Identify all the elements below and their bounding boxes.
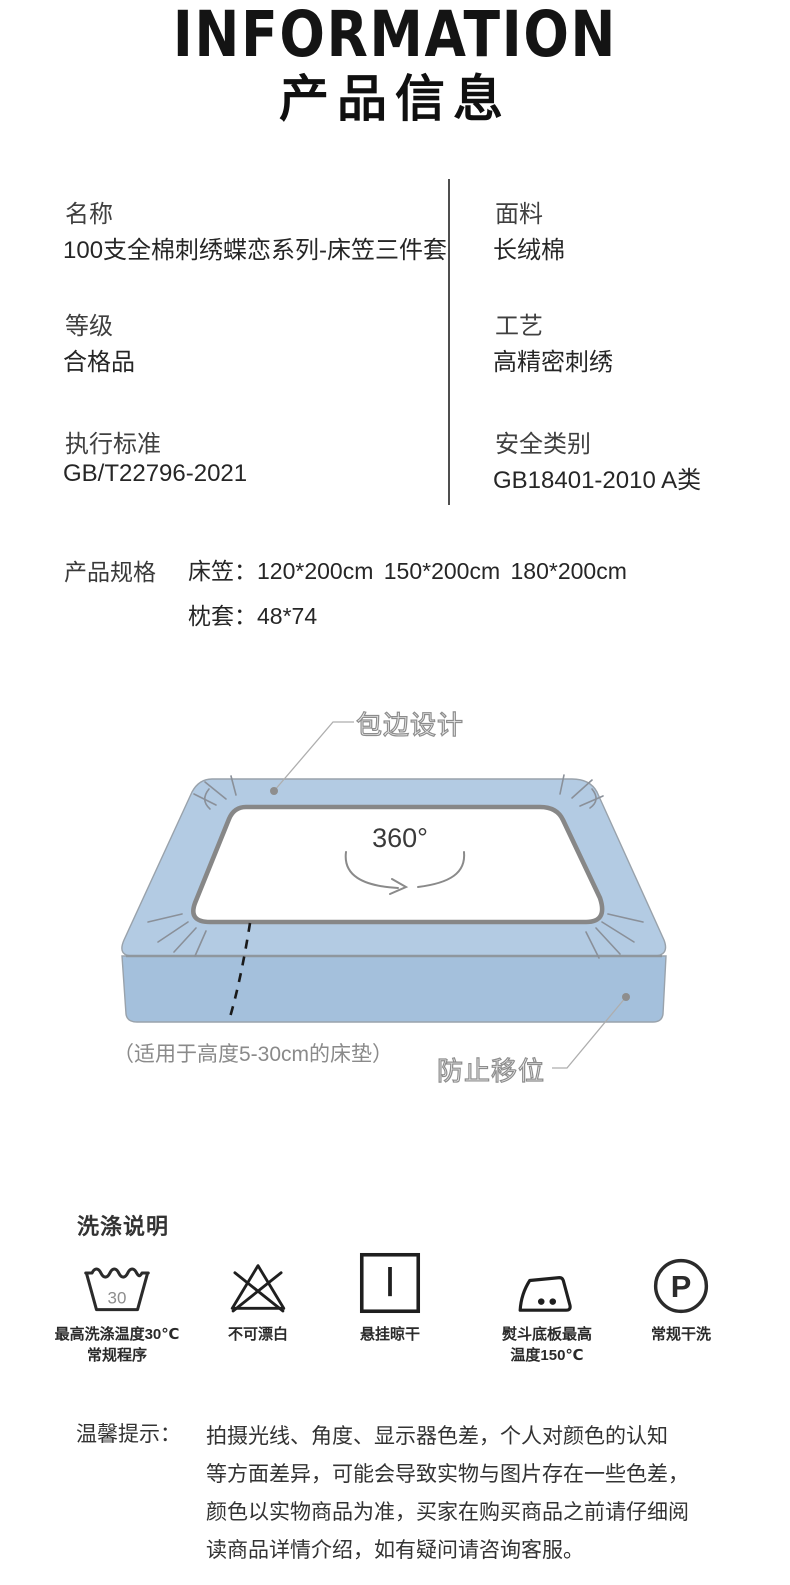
field-craft-value: 高精密刺绣	[493, 342, 613, 377]
spec-sheet-name: 床笠：	[188, 558, 257, 584]
spec-pillow-value: 48*74	[257, 603, 317, 629]
tips-label: 温馨提示：	[76, 1418, 181, 1448]
wash-tub-30-icon: 30	[82, 1265, 152, 1315]
tips-line: 等方面差异，可能会导致实物与图片存在一些色差，	[206, 1456, 689, 1494]
field-fabric-label: 面料	[495, 194, 543, 229]
washing-section-title: 洗涤说明	[77, 1209, 169, 1241]
rotation-label: 360°	[372, 823, 428, 853]
field-safety-label: 安全类别	[495, 424, 591, 459]
page-title-en: INFORMATION	[59, 0, 731, 70]
wash-temp-number: 30	[108, 1288, 127, 1307]
spec-pillow-name: 枕套：	[188, 603, 257, 629]
edge-design-label: 包边设计	[356, 705, 464, 742]
tips-line: 拍摄光线、角度、显示器色差，个人对颜色的认知	[206, 1418, 689, 1456]
field-grade-value: 合格品	[63, 342, 135, 377]
spec-sheet-value: 120*200cm 150*200cm 180*200cm	[257, 558, 627, 584]
field-name-label: 名称	[65, 194, 113, 229]
field-name-value: 100支全棉刺绣蝶恋系列-床笠三件套	[63, 230, 447, 265]
wash-item-label: 温度150℃	[462, 1345, 632, 1366]
wash-item-label: 悬挂晾干	[305, 1324, 475, 1345]
mattress-fit-note: （适用于高度5-30cm的床垫）	[113, 1038, 393, 1068]
field-grade-label: 等级	[65, 306, 113, 341]
field-standard-label: 执行标准	[65, 424, 161, 459]
fitted-sheet-illustration: 360°	[100, 690, 700, 1080]
wash-item-label: 常规程序	[32, 1345, 202, 1366]
tips-line: 颜色以实物商品为准，买家在购买商品之前请仔细阅	[206, 1494, 689, 1532]
wash-item-dry-clean: P 常规干洗	[596, 1247, 766, 1345]
spec-pillow-size: 枕套：48*74	[188, 597, 317, 631]
wash-item-hang-dry: 悬挂晾干	[305, 1247, 475, 1345]
tips-paragraph: 拍摄光线、角度、显示器色差，个人对颜色的认知 等方面差异，可能会导致实物与图片存…	[206, 1418, 689, 1570]
field-fabric-value: 长绒棉	[493, 230, 565, 265]
leader-dot-slip	[622, 993, 630, 1001]
field-safety-value: GB18401-2010 A类	[493, 460, 701, 495]
dry-clean-letter: P	[671, 1269, 692, 1304]
table-divider	[448, 179, 450, 505]
sheet-side-face	[122, 956, 666, 1022]
specs-label: 产品规格	[64, 553, 156, 587]
page-title-zh: 产品信息	[0, 64, 790, 134]
anti-slip-label: 防止移位	[437, 1051, 545, 1088]
iron-max-150-icon	[513, 1269, 581, 1315]
field-craft-label: 工艺	[495, 306, 543, 341]
tips-line: 读商品详情介绍，如有疑问请咨询客服。	[206, 1532, 689, 1570]
wash-item-label: 常规干洗	[596, 1324, 766, 1345]
product-info-page: INFORMATION 产品信息 名称 100支全棉刺绣蝶恋系列-床笠三件套 面…	[0, 0, 790, 1585]
field-standard-value: GB/T22796-2021	[63, 460, 247, 488]
dry-clean-p-icon: P	[652, 1257, 710, 1315]
spec-sheet-sizes: 床笠：120*200cm 150*200cm 180*200cm	[188, 552, 627, 586]
leader-dot-edge	[270, 787, 278, 795]
hang-dry-icon	[358, 1251, 422, 1315]
no-bleach-icon	[226, 1259, 290, 1315]
